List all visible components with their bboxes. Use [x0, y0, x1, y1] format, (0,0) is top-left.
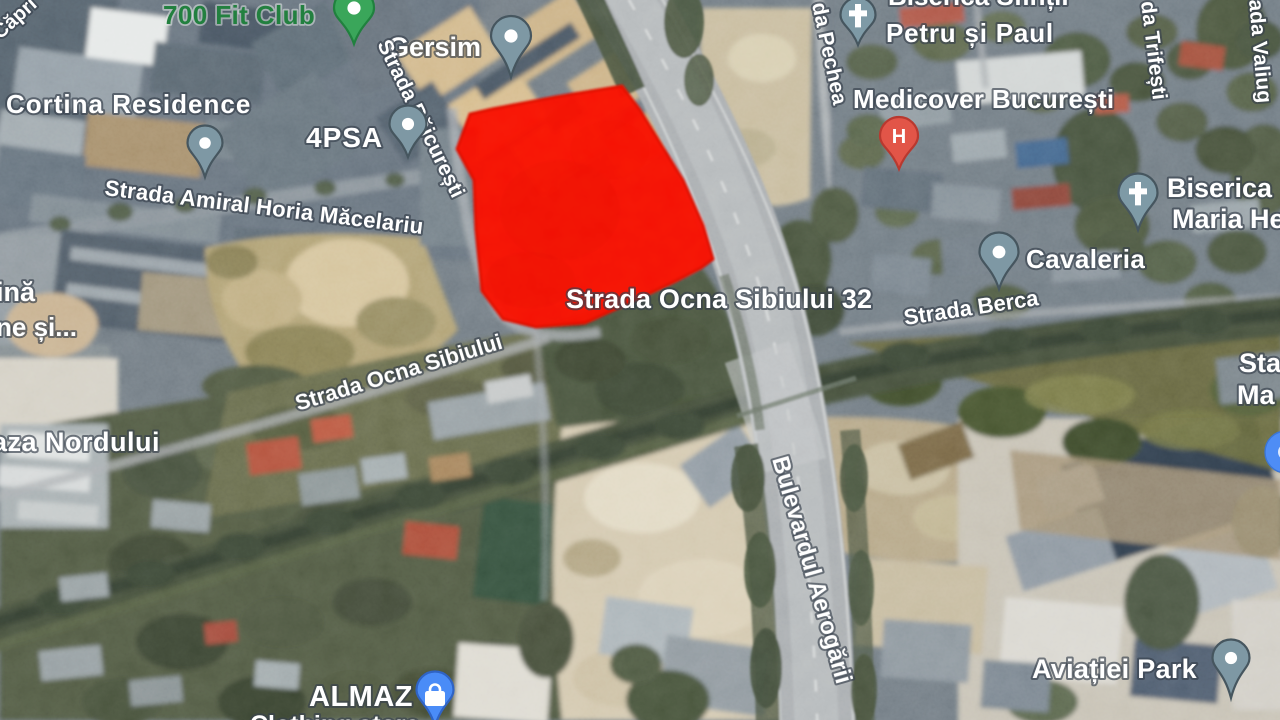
svg-text:Cavaleria: Cavaleria	[1026, 244, 1145, 274]
svg-text:Maria He: Maria He	[1172, 204, 1280, 234]
svg-text:Petru și Paul: Petru și Paul	[886, 18, 1054, 48]
svg-text:aza Nordului: aza Nordului	[0, 427, 160, 457]
svg-text:Biserica: Biserica	[1167, 173, 1273, 203]
svg-text:ină: ină	[0, 277, 36, 307]
svg-text:Biserica Sfinții: Biserica Sfinții	[888, 0, 1069, 11]
svg-text:Ma: Ma	[1237, 380, 1275, 410]
svg-text:ALMAZ: ALMAZ	[309, 681, 413, 713]
svg-text:Cortina Residence: Cortina Residence	[6, 89, 251, 119]
svg-text:700 Fit Club: 700 Fit Club	[163, 0, 315, 30]
svg-text:Sta: Sta	[1239, 348, 1280, 378]
svg-text:4PSA: 4PSA	[306, 122, 383, 153]
svg-text:Clothing store: Clothing store	[250, 711, 420, 720]
svg-text:H: H	[892, 126, 906, 148]
svg-text:Aviației Park: Aviației Park	[1032, 654, 1198, 684]
svg-text:ne și...: ne și...	[0, 312, 77, 342]
svg-text:Strada Ocna Sibiului 32: Strada Ocna Sibiului 32	[566, 284, 872, 314]
svg-text:Medicover București: Medicover București	[853, 84, 1114, 114]
